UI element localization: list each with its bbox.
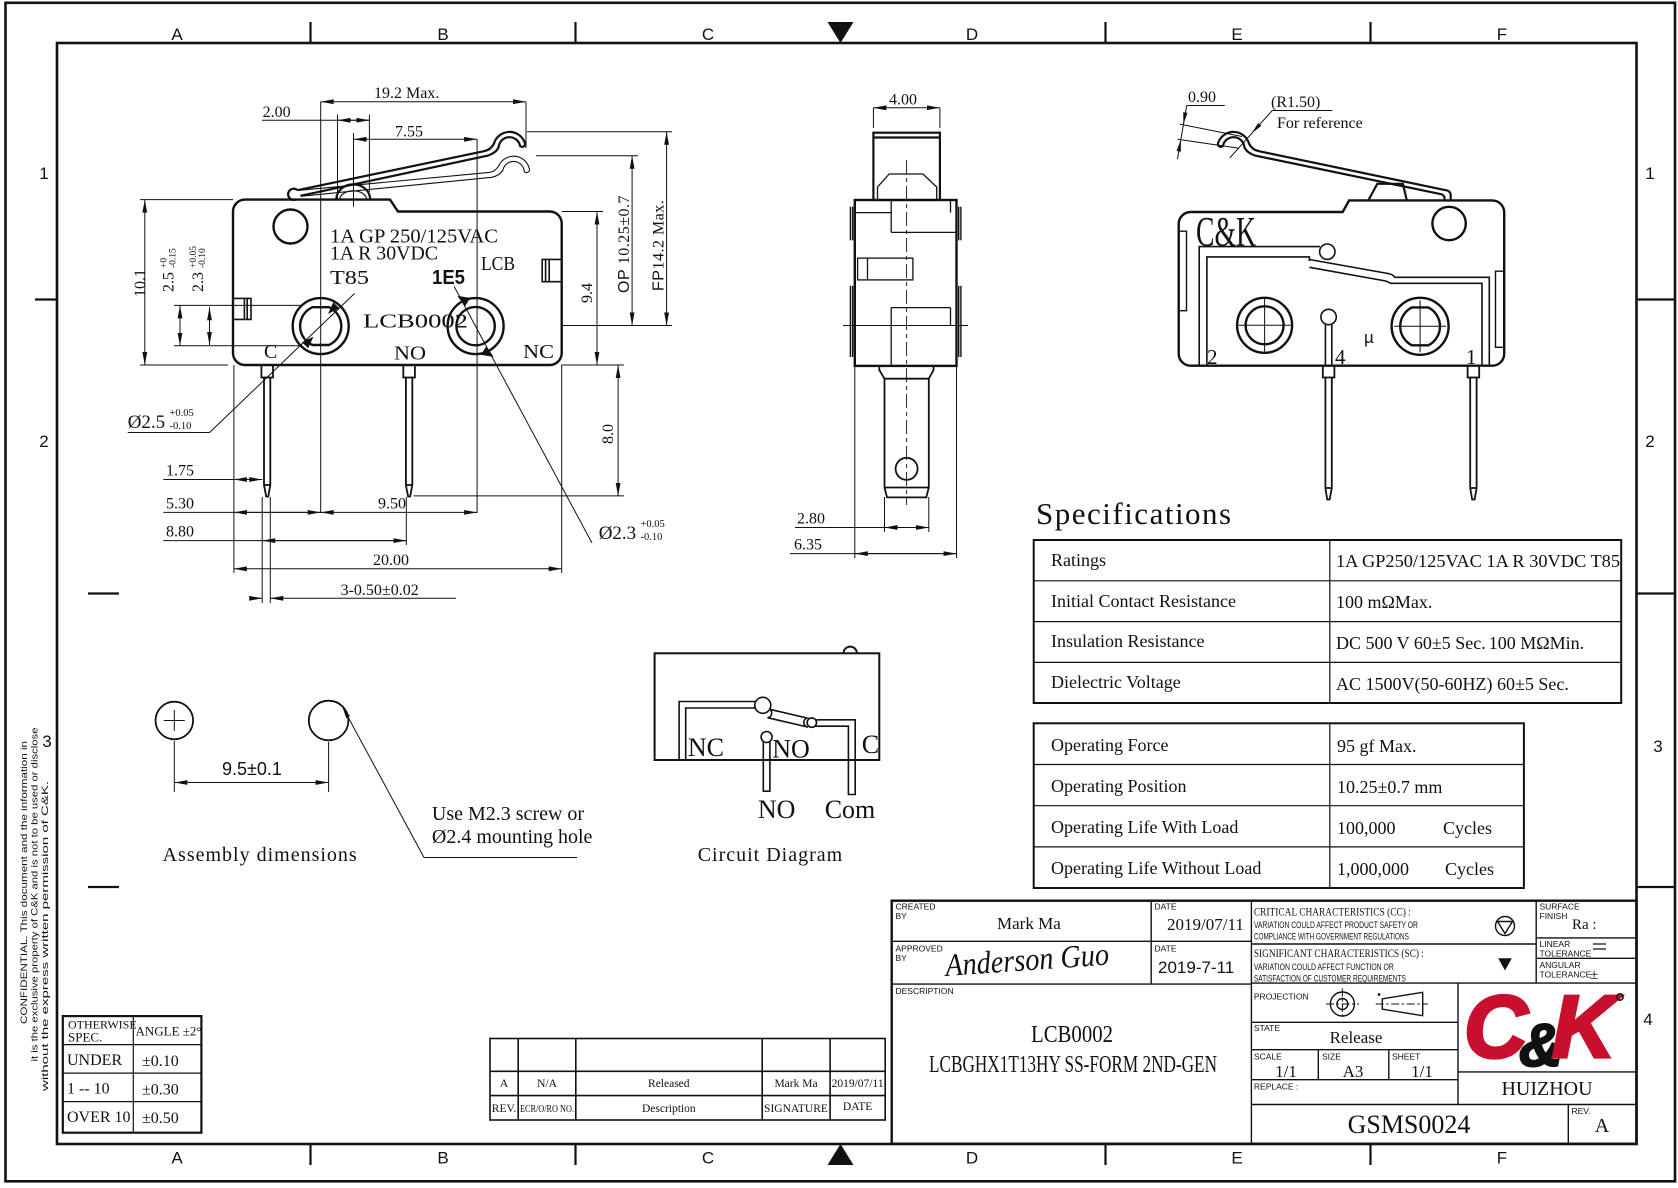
svg-text:A: A	[171, 25, 183, 44]
svg-text:9.5±0.1: 9.5±0.1	[222, 759, 282, 779]
svg-text:1/1: 1/1	[1275, 1062, 1297, 1081]
svg-text:Operating Life With Load: Operating Life With Load	[1051, 817, 1238, 837]
svg-text:Ø2.4 mounting hole: Ø2.4 mounting hole	[432, 826, 593, 848]
svg-text:C: C	[702, 1149, 714, 1168]
svg-text:OP 10.25±0.7: OP 10.25±0.7	[616, 195, 633, 293]
svg-text:±0.50: ±0.50	[142, 1110, 179, 1127]
svg-text:N/A: N/A	[537, 1078, 558, 1090]
svg-text:TOLERANCE: TOLERANCE	[1540, 949, 1592, 959]
svg-text:SCALE: SCALE	[1254, 1052, 1282, 1062]
svg-text:without the express written pe: without the express written permission o…	[40, 781, 51, 1093]
svg-text:1E5: 1E5	[432, 267, 465, 289]
svg-text:ANGLE ±2°: ANGLE ±2°	[136, 1024, 202, 1039]
svg-text:D: D	[966, 25, 978, 44]
svg-text:8.80: 8.80	[166, 524, 194, 541]
svg-text:-0.15: -0.15	[169, 248, 179, 268]
svg-text:3: 3	[1653, 737, 1662, 756]
svg-text:19.2 Max.: 19.2 Max.	[374, 85, 439, 102]
svg-text:CONFIDENTIAL. This document an: CONFIDENTIAL. This document and the info…	[19, 741, 30, 1024]
svg-text:E: E	[1231, 1149, 1242, 1168]
svg-text:4: 4	[1643, 1010, 1652, 1029]
svg-text:10.25±0.7 mm: 10.25±0.7 mm	[1337, 777, 1442, 797]
svg-text:REPLACE :: REPLACE :	[1254, 1082, 1298, 1092]
svg-text:LCB0002: LCB0002	[363, 311, 468, 333]
svg-text:SPEC.: SPEC.	[68, 1030, 102, 1045]
svg-text:F: F	[1497, 25, 1507, 44]
svg-text:1/1: 1/1	[1411, 1062, 1433, 1081]
svg-text:COMPLIANCE WITH GOVERNMENT REG: COMPLIANCE WITH GOVERNMENT REGULATIONS	[1254, 932, 1409, 942]
svg-text:100 mΩMax.: 100 mΩMax.	[1336, 592, 1432, 612]
svg-text:A3: A3	[1343, 1062, 1364, 1081]
svg-text:LCB0002: LCB0002	[1031, 1022, 1113, 1048]
svg-text:9.50: 9.50	[378, 496, 406, 513]
svg-text:8.0: 8.0	[600, 424, 617, 444]
svg-text:NO: NO	[758, 795, 796, 824]
svg-text:+0.05: +0.05	[641, 519, 665, 530]
svg-text:REV.: REV.	[1572, 1106, 1591, 1116]
svg-text:FP14.2 Max.: FP14.2 Max.	[651, 200, 668, 291]
svg-text:6.35: 6.35	[794, 537, 822, 554]
svg-text:Com: Com	[825, 795, 876, 824]
svg-text:Operating Life Without Load: Operating Life Without Load	[1051, 858, 1261, 878]
svg-text:C: C	[862, 730, 879, 759]
svg-text:VARIATION COULD AFFECT PRODUCT: VARIATION COULD AFFECT PRODUCT SAFETY OR	[1254, 920, 1418, 930]
svg-text:NO: NO	[394, 343, 426, 365]
svg-text:Dielectric Voltage: Dielectric Voltage	[1051, 672, 1181, 692]
svg-text:Ra :: Ra :	[1572, 917, 1597, 933]
svg-text:(R1.50): (R1.50)	[1271, 94, 1320, 111]
svg-text:APPROVED: APPROVED	[896, 944, 943, 954]
svg-text:Mark Ma: Mark Ma	[774, 1078, 817, 1090]
svg-text:2019-7-11: 2019-7-11	[1158, 958, 1234, 977]
svg-text:3: 3	[42, 732, 51, 751]
svg-text:GSMS0024: GSMS0024	[1348, 1110, 1471, 1139]
svg-text:HUIZHOU: HUIZHOU	[1501, 1078, 1593, 1100]
svg-text:Initial Contact Resistance: Initial Contact Resistance	[1051, 591, 1236, 611]
svg-text:DC 500 V 60±5 Sec.100 MΩMin.: DC 500 V 60±5 Sec.100 MΩMin.	[1336, 633, 1584, 653]
svg-text:Operating Position: Operating Position	[1051, 776, 1187, 796]
svg-text:Insulation Resistance: Insulation Resistance	[1051, 631, 1204, 651]
svg-text:CRITICAL CHARACTERISTICS (CC): CRITICAL CHARACTERISTICS (CC) :	[1254, 905, 1411, 919]
svg-text:95 gf Max.: 95 gf Max.	[1337, 736, 1417, 756]
svg-text:SIZE: SIZE	[1322, 1052, 1341, 1062]
svg-text:2019/07/11: 2019/07/11	[1167, 915, 1244, 934]
svg-text:Assembly dimensions: Assembly dimensions	[163, 844, 358, 866]
svg-text:BY: BY	[896, 911, 908, 921]
svg-text:Release: Release	[1330, 1028, 1383, 1047]
svg-text:SIGNIFICANT CHARACTERISTICS (S: SIGNIFICANT CHARACTERISTICS (SC) :	[1254, 946, 1424, 960]
svg-text:4: 4	[1335, 345, 1346, 369]
svg-text:F: F	[1497, 1149, 1507, 1168]
svg-text:0.90: 0.90	[1188, 89, 1216, 106]
svg-text:A: A	[1595, 1115, 1610, 1137]
svg-text:OVER 10: OVER 10	[67, 1109, 131, 1126]
svg-text:A: A	[171, 1149, 183, 1168]
svg-text:E: E	[1231, 25, 1242, 44]
svg-text:10.1: 10.1	[132, 269, 149, 297]
svg-text:Specifications: Specifications	[1036, 496, 1233, 531]
svg-text:±0.30: ±0.30	[142, 1082, 179, 1099]
svg-text:Released: Released	[648, 1078, 690, 1090]
svg-text:2.3: 2.3	[190, 272, 207, 292]
svg-text:2.5: 2.5	[161, 272, 178, 292]
svg-text:5.30: 5.30	[166, 496, 194, 513]
svg-text:ANGULAR: ANGULAR	[1540, 960, 1581, 970]
svg-text:VARIATION COULD AFFECT FUNCTIO: VARIATION COULD AFFECT FUNCTION OR	[1254, 962, 1394, 972]
svg-text:A: A	[500, 1078, 509, 1090]
svg-text:1: 1	[39, 164, 48, 183]
svg-text:1 -- 10: 1 -- 10	[67, 1081, 110, 1098]
svg-text:DATE: DATE	[1155, 902, 1177, 912]
svg-text:-0.10: -0.10	[198, 248, 208, 268]
svg-text:-0.10: -0.10	[641, 532, 663, 543]
svg-text:B: B	[437, 1149, 448, 1168]
svg-text:C&K: C&K	[1196, 210, 1256, 256]
svg-text:Use M2.3 screw or: Use M2.3 screw or	[432, 803, 585, 825]
svg-text:Ø2.3: Ø2.3	[599, 523, 636, 544]
svg-text:Ratings: Ratings	[1051, 550, 1106, 570]
svg-text:2.00: 2.00	[263, 104, 291, 121]
svg-text:1A R 30VDC: 1A R 30VDC	[330, 243, 438, 265]
svg-text:PROJECTION: PROJECTION	[1254, 992, 1309, 1002]
svg-text:SATISFACTION OF CUSTOMER REQUI: SATISFACTION OF CUSTOMER REQUIREMENTS	[1254, 974, 1406, 984]
svg-text:REV.: REV.	[492, 1103, 517, 1115]
svg-text:Description: Description	[642, 1103, 696, 1115]
svg-text:it is the exclusive property o: it is the exclusive property of C&K and …	[30, 728, 41, 1062]
svg-text:SHEET: SHEET	[1392, 1052, 1420, 1062]
svg-text:1: 1	[1466, 345, 1477, 369]
svg-text:7.55: 7.55	[395, 124, 423, 141]
svg-text:Circuit Diagram: Circuit Diagram	[698, 844, 844, 866]
svg-text:T85: T85	[330, 267, 369, 289]
svg-text:D: D	[966, 1149, 978, 1168]
svg-text:ECR/O/RO NO.: ECR/O/RO NO.	[520, 1103, 574, 1115]
svg-text:2019/07/11: 2019/07/11	[832, 1078, 884, 1090]
svg-text:2: 2	[1207, 345, 1218, 369]
svg-text:C: C	[264, 341, 277, 363]
svg-text:2: 2	[1645, 432, 1654, 451]
svg-text:4.00: 4.00	[889, 92, 917, 109]
svg-text:For reference: For reference	[1277, 115, 1363, 132]
svg-text:Operating Force: Operating Force	[1051, 735, 1168, 755]
svg-text:Ø2.5: Ø2.5	[128, 412, 165, 433]
svg-text:UNDER: UNDER	[67, 1052, 122, 1069]
svg-text:SIGNATURE: SIGNATURE	[764, 1103, 828, 1115]
svg-text:±0.10: ±0.10	[142, 1053, 179, 1070]
svg-text:C: C	[702, 25, 714, 44]
svg-text:Mark Ma: Mark Ma	[997, 914, 1061, 933]
svg-text:NC: NC	[688, 733, 724, 762]
svg-text:3-0.50±0.02: 3-0.50±0.02	[341, 582, 419, 599]
svg-text:DATE: DATE	[843, 1101, 872, 1113]
svg-text:+0.05: +0.05	[170, 408, 194, 419]
svg-text:K: K	[1552, 977, 1621, 1076]
svg-text:BY: BY	[896, 953, 908, 963]
svg-text:µ: µ	[1364, 328, 1374, 347]
svg-text:CREATED: CREATED	[896, 902, 936, 912]
svg-text:DESCRIPTION: DESCRIPTION	[896, 986, 954, 996]
svg-text:LINEAR: LINEAR	[1540, 939, 1571, 949]
svg-text:2.80: 2.80	[797, 511, 825, 528]
svg-text:FINISH: FINISH	[1540, 911, 1568, 921]
svg-text:LCB: LCB	[481, 253, 515, 275]
svg-text:1.75: 1.75	[166, 463, 194, 480]
svg-text:SURFACE: SURFACE	[1540, 902, 1580, 912]
svg-text:LCBGHX1T13HY SS-FORM 2ND-GEN: LCBGHX1T13HY SS-FORM 2ND-GEN	[929, 1052, 1217, 1078]
svg-text:DATE: DATE	[1155, 944, 1177, 954]
svg-text:AC 1500V(50-60HZ) 60±5 Sec.: AC 1500V(50-60HZ) 60±5 Sec.	[1336, 674, 1569, 695]
svg-text:2: 2	[39, 432, 48, 451]
svg-text:9.4: 9.4	[579, 283, 596, 303]
svg-text:-0.10: -0.10	[170, 421, 192, 432]
svg-text:NO: NO	[772, 735, 810, 764]
svg-text:1: 1	[1645, 164, 1654, 183]
svg-text:NC: NC	[523, 341, 554, 363]
svg-text:STATE: STATE	[1254, 1023, 1280, 1033]
svg-text:B: B	[437, 25, 448, 44]
svg-text:20.00: 20.00	[373, 552, 409, 569]
svg-text:1A GP250/125VAC 1A R 30VDC T85: 1A GP250/125VAC 1A R 30VDC T85	[1336, 551, 1620, 571]
